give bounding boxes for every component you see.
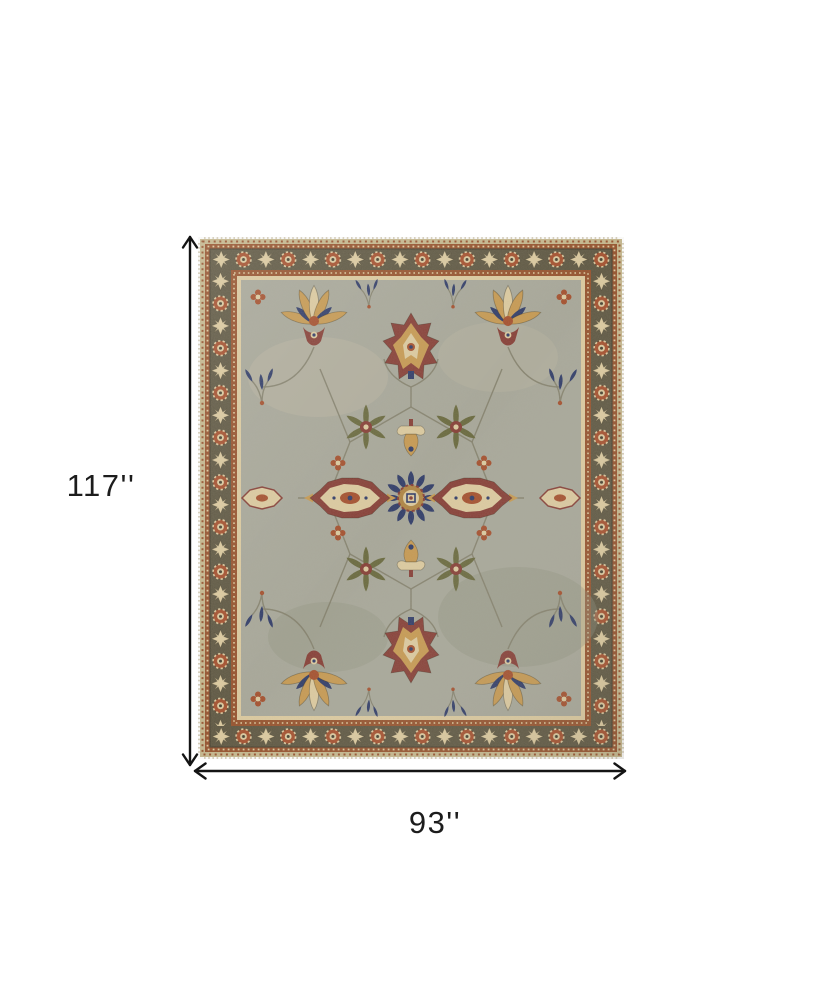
height-dimension-label: 117''	[43, 468, 159, 504]
width-dimension-arrow	[192, 758, 628, 784]
rug-image	[198, 237, 624, 759]
rug-lighting-overlay	[198, 237, 624, 759]
height-dimension-arrow	[179, 234, 201, 768]
product-dimension-figure: 117'' 93''	[0, 0, 817, 1000]
width-dimension-label: 93''	[377, 805, 493, 841]
